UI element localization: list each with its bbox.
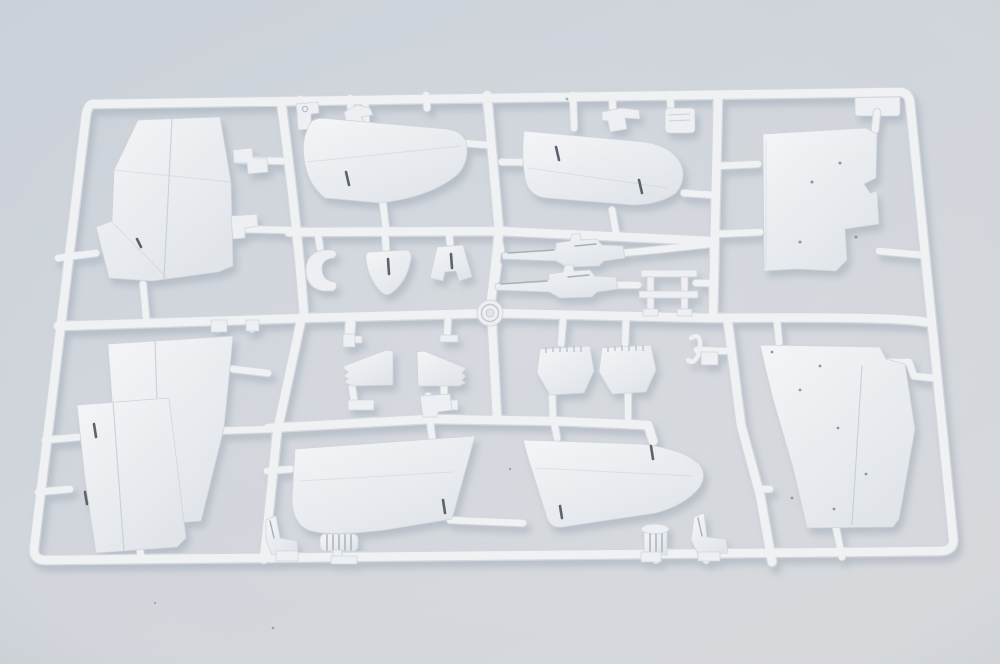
small-clip-c [246,320,259,331]
small-clip-b [211,320,227,332]
bulkhead-right [599,345,656,394]
stem-foot-right [440,335,458,342]
dust-speck [272,627,275,630]
center-wing-panel-left [292,436,475,534]
dust-speck [509,468,511,470]
small-block [701,352,718,365]
sprue-photo [0,0,1000,664]
small-pad [665,108,695,133]
mold-hub [477,300,503,326]
small-clip-d [343,334,355,347]
dust-speck [566,98,569,101]
bulkhead-left [537,346,594,395]
dust-speck [154,602,156,604]
bottom-left-wing-panel-front [77,398,186,553]
